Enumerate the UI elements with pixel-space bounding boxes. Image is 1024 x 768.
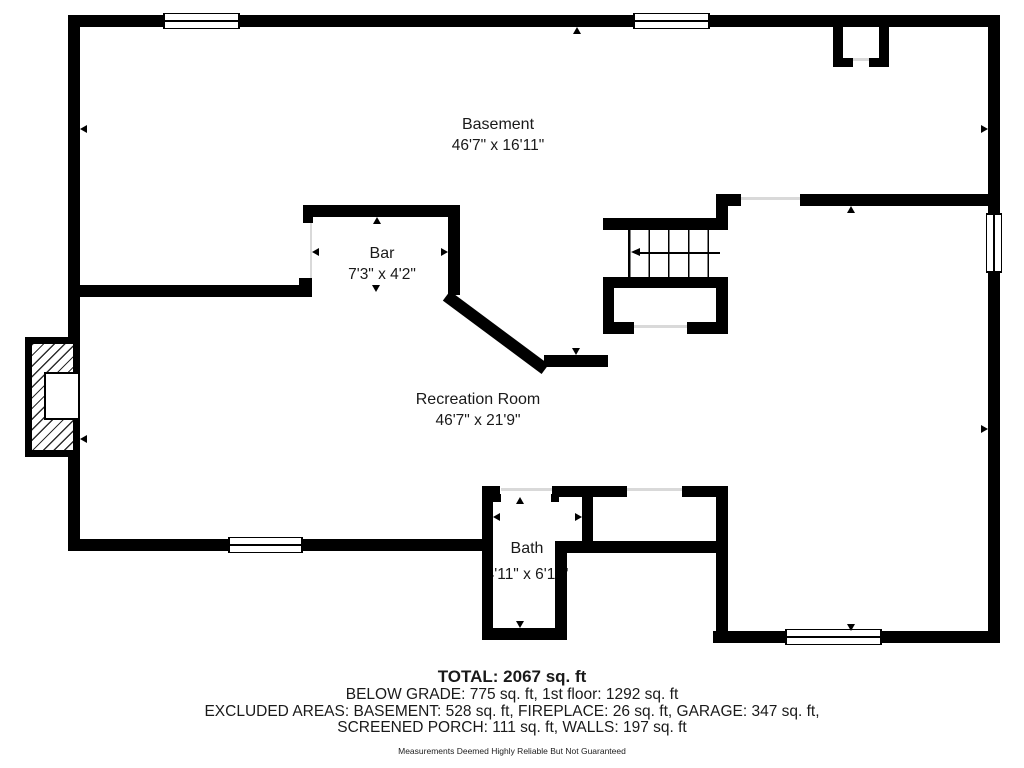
- room-name: Recreation Room: [378, 389, 578, 410]
- marker-bath-top-icon: [516, 497, 524, 504]
- floor-plan-canvas: Basement 46'7" x 16'11" Bar 7'3" x 4'2" …: [0, 0, 1024, 768]
- wall-bar-left-stub: [303, 205, 313, 223]
- marker-rec-bottom-icon: [847, 624, 855, 631]
- wall-stair-top: [603, 218, 728, 230]
- wall-upper-right-a: [716, 194, 741, 206]
- wall-closet-right: [716, 277, 728, 334]
- wall-diagonal: [443, 291, 549, 374]
- chimney-foot-right: [869, 58, 879, 67]
- marker-basement-left-icon: [80, 125, 87, 133]
- window-bottom-right: [785, 629, 882, 645]
- marker-bar-right-icon: [441, 248, 448, 256]
- room-dimensions: 4'11" x 6'11": [447, 564, 607, 586]
- wall-below-bar: [68, 285, 312, 297]
- wall-diagonal-foot: [544, 355, 608, 367]
- wall-br-room-left: [716, 486, 728, 643]
- window-pane: [635, 20, 708, 21]
- wall-closet-bottom-left: [603, 322, 634, 334]
- wall-bar-right: [448, 205, 460, 295]
- footer-disclaimer: Measurements Deemed Highly Reliable But …: [0, 746, 1024, 756]
- window-top-right: [633, 13, 710, 29]
- wall-upper-right-b: [800, 194, 988, 206]
- marker-bar-top-icon: [373, 217, 381, 224]
- chimney-foot-left: [843, 58, 853, 67]
- marker-bath-bottom-icon: [516, 621, 524, 628]
- wall-bath-left: [482, 486, 493, 640]
- opening-small-closet: [627, 488, 682, 491]
- opening-upper-right: [741, 197, 800, 200]
- window-pane: [230, 544, 301, 545]
- window-right: [986, 213, 1002, 273]
- room-label-recreation: Recreation Room 46'7" x 21'9": [378, 389, 578, 431]
- room-label-basement: Basement 46'7" x 16'11": [398, 114, 598, 156]
- fireplace-firebox: [44, 372, 80, 420]
- window-top-left: [163, 13, 240, 29]
- room-dimensions: 7'3" x 4'2": [307, 264, 457, 285]
- wall-below-bar-nub: [299, 278, 312, 297]
- marker-basement-bottom-icon: [572, 348, 580, 355]
- marker-bath-left-icon: [493, 513, 500, 521]
- opening-closet: [634, 325, 687, 328]
- marker-basement-right-icon: [981, 125, 988, 133]
- wall-bar-top: [303, 205, 458, 217]
- marker-rec-right-icon: [981, 425, 988, 433]
- marker-bar-left-icon: [312, 248, 319, 256]
- room-name: Bar: [307, 243, 457, 264]
- marker-basement-top-icon: [573, 27, 581, 34]
- wall-left: [68, 15, 80, 551]
- area-summary: TOTAL: 2067 sq. ft BELOW GRADE: 775 sq. …: [0, 666, 1024, 756]
- chimney-opening-line: [853, 58, 869, 61]
- wall-bath-right-lower: [555, 541, 567, 640]
- chimney-leg-right: [879, 27, 889, 67]
- room-dimensions: 46'7" x 16'11": [398, 135, 598, 156]
- footer-excluded-areas-1: EXCLUDED AREAS: BASEMENT: 528 sq. ft, FI…: [0, 704, 1024, 721]
- window-bottom-left: [228, 537, 303, 553]
- footer-total: TOTAL: 2067 sq. ft: [0, 666, 1024, 687]
- marker-rec-left-icon: [80, 435, 87, 443]
- marker-bath-right-icon: [575, 513, 582, 521]
- footer-excluded-areas-2: SCREENED PORCH: 111 sq. ft, WALLS: 197 s…: [0, 720, 1024, 737]
- wall-rec-bottom-mid: [555, 541, 728, 553]
- stair-direction-arrowhead-icon: [631, 248, 640, 256]
- window-pane: [787, 636, 880, 637]
- wall-closet-top: [603, 277, 728, 288]
- chimney-leg-left: [833, 27, 843, 67]
- wall-right: [988, 15, 1000, 643]
- stair-direction-arrow: [640, 252, 720, 254]
- marker-bar-bottom-icon: [372, 285, 380, 292]
- room-name: Basement: [398, 114, 598, 135]
- wall-bath-doorjamb-left: [493, 494, 501, 502]
- window-pane: [993, 215, 994, 271]
- window-pane: [165, 20, 238, 21]
- room-dimensions: 46'7" x 21'9": [378, 410, 578, 431]
- opening-bath-door: [501, 488, 552, 491]
- marker-rec-top-icon: [847, 206, 855, 213]
- room-label-bar: Bar 7'3" x 4'2": [307, 243, 457, 285]
- footer-below-grade: BELOW GRADE: 775 sq. ft, 1st floor: 1292…: [0, 687, 1024, 704]
